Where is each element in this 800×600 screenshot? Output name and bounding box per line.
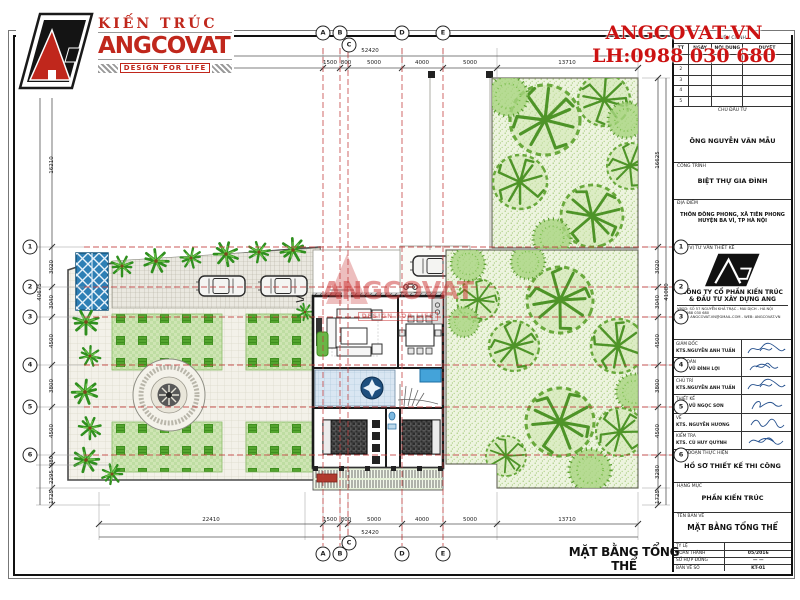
signature-row: VẼKTS. NGUYỄN HƯƠNG [674,414,791,432]
consultant-section: ĐƠN VỊ TƯ VẤN THIẾT KẾ CÔNG TY CỔ PHẦN K… [674,245,791,340]
signature-icon [746,360,786,374]
axis-row-5-left: 5 [23,400,38,415]
dim-top: 4000 [415,60,429,66]
company-line2: & ĐẦU TƯ XÂY DỰNG ANG [677,296,788,303]
dim-right: 3040 [655,295,661,309]
consultant-label: ĐƠN VỊ TƯ VẤN THIẾT KẾ [677,246,788,251]
location-section: ĐỊA ĐIỂM THÔN ĐÔNG PHONG, XÃ TIÊN PHONG … [674,200,791,245]
hatch-bar-right [212,64,232,73]
axis-col-c-top: C [342,38,357,53]
axis-row-6-right: 6 [674,448,689,463]
project-section: CÔNG TRÌNH BIỆT THỰ GIA ĐÌNH [674,163,791,200]
dim-left: 4500 [49,424,55,438]
drawing-value: MẶT BẰNG TỔNG THỂ [677,523,788,532]
investor-section: CHỦ ĐẦU TƯ ÔNG NGUYỄN VĂN MẪU [674,107,791,163]
dim-left: 1725 [49,490,55,504]
hatch-bar-left [98,64,118,73]
axis-col-d-top: D [395,26,410,41]
category-label: HẠNG MỤC [677,484,788,489]
revision-row-num: 3 [674,76,689,86]
axis-col-e-bottom: E [436,547,451,562]
sig-name: KTS.NGUYỄN ANH TUẤN [676,349,739,354]
dim-left: 16210 [49,156,55,174]
revision-row-num: 5 [674,97,689,107]
dim-left: 4500 [49,334,55,348]
axis-row-5-right: 5 [674,400,689,415]
axis-row-2-right: 2 [674,280,689,295]
axis-row-3-right: 3 [674,310,689,325]
dim-bottom-overall: 52420 [361,530,379,536]
category-value: PHẦN KIẾN TRÚC [677,494,788,502]
axis-row-4-left: 4 [23,358,38,373]
drawing-name-section: TÊN BẢN VẼ MẶT BẰNG TỔNG THỂ [674,513,791,543]
dim-left-overall: 40675 [37,283,43,301]
investor-label: CHỦ ĐẦU TƯ [677,108,788,113]
location-label: ĐỊA ĐIỂM [677,201,788,206]
dim-top-overall: 52420 [361,48,379,54]
dim-bottom: 22410 [202,517,220,523]
sig-name: KTS. CÙ HUY QUỲNH [676,441,739,446]
dim-top: 1500 [323,60,337,66]
dim-bottom: 5000 [463,517,477,523]
consultant-logo-icon [705,252,761,288]
axis-col-a-bottom: A [316,547,331,562]
signature-row: GIÁM ĐỐCKTS.NGUYỄN ANH TUẤN [674,340,791,358]
project-label: CÔNG TRÌNH [677,164,788,169]
finish-value: 05/2016 [725,551,791,556]
axis-col-a-top: A [316,26,331,41]
signature-row: THIẾT KẾKTS. VŨ NGỌC SƠN [674,395,791,413]
plan-title: MẶT BẰNG TỔNG THỂ [566,545,682,576]
dim-top: 5000 [463,60,477,66]
signature-icon [746,378,786,392]
sig-role: GIÁM ĐỐC [676,341,739,346]
signature-row: CN ĐOÀNKTS. VŨ ĐÌNH LỢI [674,358,791,376]
signature-row: CHỦ TRÌKTS.NGUYỄN ANH TUẤN [674,377,791,395]
sig-role: VẼ [676,415,739,420]
dim-right: 1725 [655,490,661,504]
axis-row-1-right: 1 [674,240,689,255]
dim-left: 2295 [49,470,55,484]
stage-label: GIAI ĐOẠN THỰC HIỆN [677,451,788,456]
signature-row: KIỂM TRAKTS. CÙ HUY QUỲNH [674,432,791,450]
dim-left: 3020 [49,260,55,274]
logo-angcovat: ANGCOVAT [98,32,232,60]
axis-col-d-bottom: D [395,547,410,562]
stage-value: HỒ SƠ THIẾT KẾ THI CÔNG [677,462,788,470]
dim-right: 16625 [655,151,661,169]
sig-role: KIỂM TRA [676,433,739,438]
dim-top: 5000 [367,60,381,66]
dim-left: 3800 [49,379,55,393]
drawing-sheet: 22410 1500 800 5000 4000 5000 13710 5242… [0,0,800,600]
axis-row-4-right: 4 [674,358,689,373]
dim-bottom: 800 [341,517,352,523]
investor-name: ÔNG NGUYỄN VĂN MẪU [677,137,788,145]
axis-row-1-left: 1 [23,240,38,255]
project-name: BIỆT THỰ GIA ĐÌNH [677,177,788,185]
signature-icon [746,434,786,448]
dim-bottom: 1500 [323,517,337,523]
footer-table: TỶ LỆ HOÀN THÀNH05/2016 SỐ HỢP ĐỒNG— — B… [674,543,791,571]
axis-col-c-bottom: C [342,536,357,551]
logo-kien-truc: KIẾN TRÚC [98,16,232,32]
dim-right: 3800 [655,379,661,393]
revision-row-num: 4 [674,86,689,96]
contact-line3: EMAIL: ANGCOVAT.VN@GMAIL.COM - WEB: ANGC… [677,315,788,319]
logo-tagline: DESIGN FOR LIFE [120,63,210,73]
number-value: KT-01 [725,566,791,571]
company-logo-block: KIẾN TRÚC ANGCOVAT DESIGN FOR LIFE [16,4,234,98]
dim-bottom: 13710 [558,517,576,523]
signature-icon [746,342,786,356]
dim-right-overall: 41080 [664,283,670,301]
dim-bottom: 4000 [415,517,429,523]
contact-banner: ANGCOVAT.VN LH:0988 030 680 [570,22,798,68]
company-line1: CÔNG TY CỔ PHẦN KIẾN TRÚC [677,289,788,296]
dim-left: 3040 [49,295,55,309]
website: ANGCOVAT.VN [570,22,798,45]
sig-name: KTS. NGUYỄN HƯƠNG [676,423,739,428]
dim-right: 3280 [655,465,661,479]
dim-bottom: 5000 [367,517,381,523]
contract-value: — — [725,558,791,563]
title-block: HIỆU CHỈNH TT NGÀY NỘI DUNG DUYỆT 1 2 3 … [672,35,791,572]
dim-right: 4500 [655,424,661,438]
stage-section: GIAI ĐOẠN THỰC HIỆN HỒ SƠ THIẾT KẾ THI C… [674,450,791,483]
sig-role: CHỦ TRÌ [676,378,739,383]
signature-icon [746,397,786,411]
dim-right: 3020 [655,260,661,274]
axis-col-e-top: E [436,26,451,41]
signature-icon [746,415,786,429]
hotline: LH:0988 030 680 [570,45,798,68]
angcovat-logo-icon [18,10,94,94]
axis-row-3-left: 3 [23,310,38,325]
category-section: HẠNG MỤC PHẦN KIẾN TRÚC [674,483,791,513]
axis-row-2-left: 2 [23,280,38,295]
dim-left: 980 [49,456,55,467]
dim-right: 4500 [655,334,661,348]
signature-rows: GIÁM ĐỐCKTS.NGUYỄN ANH TUẤN CN ĐOÀNKTS. … [674,340,791,450]
axis-row-6-left: 6 [23,448,38,463]
sig-name: KTS.NGUYỄN ANH TUẤN [676,386,739,391]
location-line2: HUYỆN BA VÌ, TP HÀ NỘI [677,218,788,224]
dim-top: 800 [341,60,352,66]
drawing-label: TÊN BẢN VẼ [677,514,788,519]
